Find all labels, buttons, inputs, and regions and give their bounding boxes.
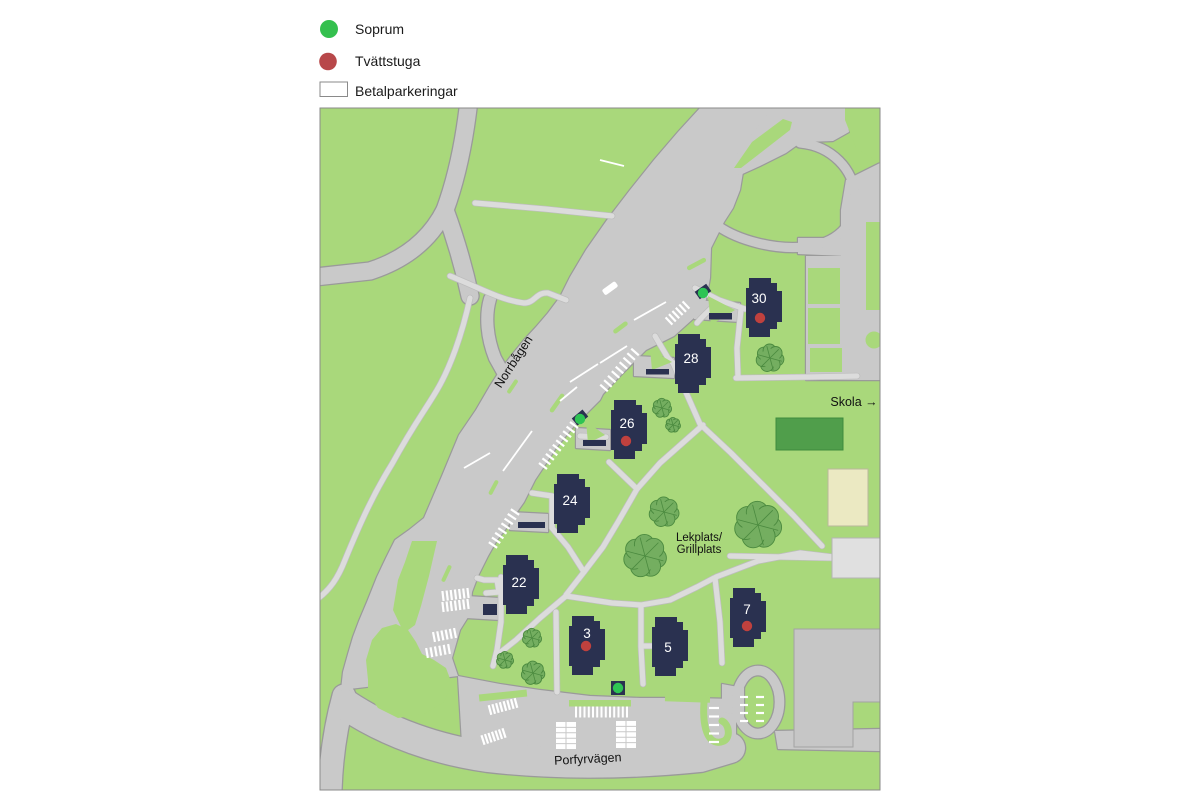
svg-text:Skola →: Skola →: [830, 395, 877, 409]
svg-text:26: 26: [619, 416, 634, 431]
svg-text:7: 7: [743, 602, 751, 617]
svg-text:Lekplats/: Lekplats/: [676, 532, 723, 544]
svg-text:3: 3: [583, 626, 591, 641]
svg-text:22: 22: [511, 575, 526, 590]
svg-text:Soprum: Soprum: [355, 21, 404, 37]
svg-text:Tvättstuga: Tvättstuga: [355, 53, 421, 69]
svg-text:5: 5: [664, 640, 672, 655]
svg-text:30: 30: [751, 291, 766, 306]
svg-text:Grillplats: Grillplats: [677, 544, 722, 556]
svg-text:28: 28: [683, 351, 698, 366]
svg-text:Betalparkeringar: Betalparkeringar: [355, 83, 458, 99]
svg-text:24: 24: [562, 493, 578, 508]
